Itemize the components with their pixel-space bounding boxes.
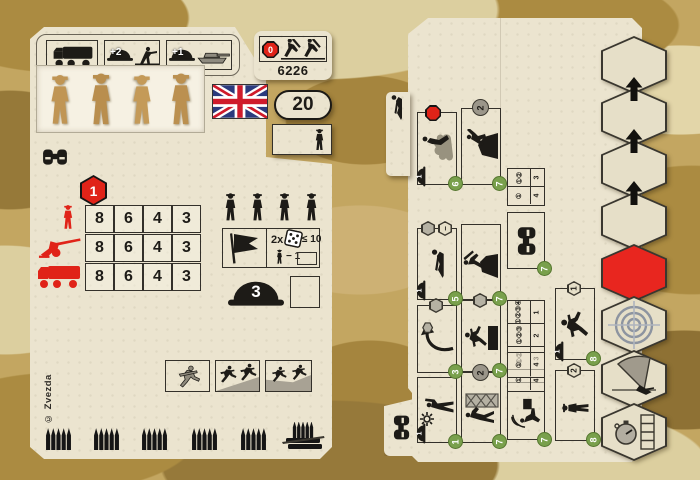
order-cost: 7 <box>494 181 504 186</box>
binoculars-icon <box>515 226 537 256</box>
figure-4 <box>165 71 197 129</box>
stat-cell: 4 <box>143 263 172 291</box>
unit-size-box <box>272 124 332 155</box>
order-cost: 7 <box>539 266 549 271</box>
radio-operator-icon <box>509 397 543 429</box>
signal-flare-icon <box>419 393 455 427</box>
vs-truck-icon <box>36 263 82 289</box>
point-cost-pill: 20 <box>274 90 332 120</box>
helmet-value-icon: 1 <box>553 342 566 362</box>
firing-soldier-icon <box>135 46 159 66</box>
order-cost: 8 <box>588 356 598 361</box>
card-crease <box>500 18 501 110</box>
stat-cell: 8 <box>85 205 114 233</box>
marker-slot-box <box>290 276 320 308</box>
squad-soldier-icon <box>303 192 320 223</box>
descending-soldier-icon <box>270 366 288 384</box>
soldier-icon <box>275 249 284 265</box>
terrain-badge <box>421 221 435 236</box>
ammo-clip-icon <box>141 424 168 451</box>
vs-gun-icon <box>38 235 82 259</box>
order-entrench-box <box>461 224 501 300</box>
entrench-hex-outline: 0 <box>262 41 279 58</box>
unit-rating: 1 <box>90 183 98 199</box>
running-soldier-icon <box>238 363 258 383</box>
move-descend-box <box>265 360 312 392</box>
range-table-large: ①②③④ 1 ①②③ 2 ①② 3 ① 4 <box>507 300 545 392</box>
defense-helmet: 3 <box>228 276 284 308</box>
stat-cell: 4 <box>143 205 172 233</box>
range-table-radio: ① 4 <box>507 352 545 378</box>
terrain-badge <box>429 298 443 313</box>
catalog-number: 6226 <box>278 63 309 78</box>
copyright: © Zvezda <box>40 362 54 424</box>
defense-value: 3 <box>228 282 284 302</box>
camouflage-background: 0 6226 20 +2 +1 <box>0 0 700 480</box>
stopwatch-icon <box>606 407 662 457</box>
order-cost: 5 <box>450 296 460 301</box>
morale-threshold: ≤ 10 <box>302 234 321 245</box>
die-icon <box>283 228 303 248</box>
crawling-soldier-icon <box>430 247 446 279</box>
order-cost: 8 <box>588 437 598 442</box>
move-badge: 1 <box>567 281 581 296</box>
order-cost: 6 <box>450 181 460 186</box>
tank-icon <box>195 48 231 65</box>
move-crouch-box <box>165 360 210 392</box>
assault-position-icon <box>462 320 500 354</box>
stat-cell: 6 <box>114 263 143 291</box>
stat-cell: 8 <box>85 263 114 291</box>
order-cost: 1 <box>450 439 460 444</box>
stat-cell: 3 <box>172 234 201 262</box>
smoke-screen-icon <box>417 130 457 164</box>
stat-cell: 4 <box>143 234 172 262</box>
order-march-box <box>555 370 595 441</box>
grenade-badge: 2 <box>472 99 489 116</box>
figure-2 <box>85 71 117 129</box>
timer-hex <box>601 403 667 461</box>
target-marker-hex <box>601 244 667 302</box>
stat-cell: 3 <box>172 205 201 233</box>
terrain-badge <box>473 293 487 308</box>
crouching-soldier-icon <box>176 365 202 390</box>
ammo-clip-icon <box>240 424 267 451</box>
modifier-badge: − <box>438 221 452 236</box>
range-table-small: ①② 3 ① 4 <box>507 168 545 206</box>
order-cost: 7 <box>539 437 549 442</box>
squad-soldier-icon <box>222 192 239 223</box>
order-cost: 3 <box>450 369 460 374</box>
morale-multiplier: 2x <box>271 234 283 246</box>
stat-cell: 3 <box>172 263 201 291</box>
figures-photo <box>36 65 205 133</box>
union-jack-flag <box>212 84 268 119</box>
descending-soldier-icon <box>290 364 308 382</box>
cover-defense-bonus: +1 <box>172 47 183 58</box>
move-badge: 2 <box>567 363 581 378</box>
fire-arc-hex <box>601 350 667 408</box>
ammo-clip-icon <box>93 424 120 451</box>
advance-arrow-icon <box>625 76 643 102</box>
infantry-defense-bonus: +2 <box>110 47 121 58</box>
order-climb-box <box>461 372 501 443</box>
order-assault-box <box>461 300 501 372</box>
running-soldier-icon <box>218 365 238 385</box>
order-maneuver-box <box>417 305 457 373</box>
stat-cell: 6 <box>114 205 143 233</box>
advance-arrow-icon <box>625 180 643 206</box>
stat-cell: 6 <box>114 234 143 262</box>
entrench-box: 0 <box>259 36 327 62</box>
vs-infantry-icon <box>60 204 76 231</box>
helmet-value-icon: 1 <box>415 167 428 187</box>
morale-box: 2x ≤ 10 − 1 <box>222 228 320 268</box>
obstacle-climb-icon <box>462 391 500 425</box>
ammo-clip-icon <box>45 424 72 451</box>
helmet-value-icon: 1 <box>415 281 428 301</box>
grenade-badge: 2 <box>472 364 489 381</box>
maneuver-arrow-icon <box>419 322 455 356</box>
entrench-icon <box>462 246 500 280</box>
order-spot-box <box>507 212 545 269</box>
marching-soldier-icon <box>561 394 591 422</box>
black-flag-icon <box>228 231 262 265</box>
point-cost: 20 <box>292 94 313 116</box>
running-soldier-icon <box>560 309 592 341</box>
ammo-clip-icon <box>191 424 218 451</box>
entrench-rating: 0 <box>268 45 273 55</box>
binoculars-icon <box>42 147 68 166</box>
target-rings-icon <box>608 301 660 349</box>
move-climb-box <box>215 360 260 392</box>
grenade-assault-icon <box>462 129 500 163</box>
fire-sector-icon <box>606 354 662 404</box>
advance-arrow-icon <box>625 128 643 154</box>
order-cost: 7 <box>494 368 504 373</box>
morale-marker-slot <box>297 252 317 265</box>
helmet-value-icon: 1 <box>415 424 428 444</box>
aim-hex <box>601 296 667 354</box>
stat-cell: 8 <box>85 234 114 262</box>
soldier-icon <box>313 128 326 152</box>
squad-soldier-icon <box>249 192 266 223</box>
order-grenade-box <box>461 108 501 185</box>
digging-soldiers-icon <box>281 39 325 60</box>
figure-3 <box>127 72 157 129</box>
order-cost: 7 <box>494 439 504 444</box>
squad-soldier-icon <box>276 192 293 223</box>
figure-1 <box>45 72 75 129</box>
supply-crate-icon <box>282 422 326 452</box>
order-cost: 7 <box>494 296 504 301</box>
